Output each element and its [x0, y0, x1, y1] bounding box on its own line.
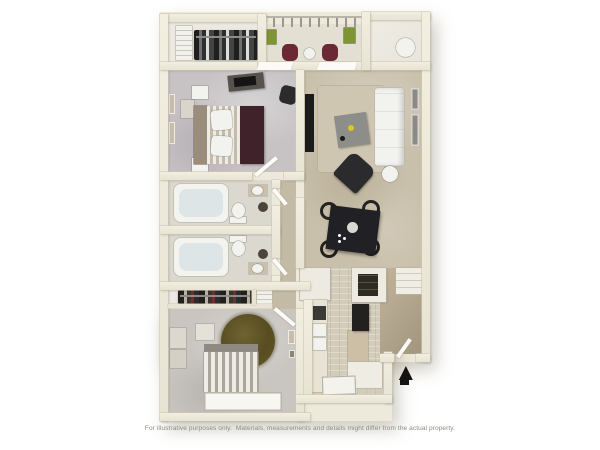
bedroom2-wall-art — [288, 330, 295, 344]
wall-bedroom-bath-b — [284, 172, 304, 180]
planter-right-icon — [344, 28, 355, 43]
bedroom2-dresser-2 — [170, 350, 186, 368]
sink-2-basin — [252, 264, 263, 273]
bedroom2-headboard — [204, 344, 258, 352]
oven-front — [313, 338, 326, 350]
bedroom2-closet-rod — [180, 295, 250, 297]
wall-bath-bottom — [160, 282, 310, 290]
closet-shelves — [176, 26, 192, 60]
coffee-table-accent — [348, 125, 354, 131]
wall-bedroom2-bottom — [160, 413, 310, 421]
living-wall-art-1 — [411, 88, 419, 110]
bedroom2-wall-fixture — [289, 350, 295, 358]
refrigerator-icon — [352, 304, 369, 331]
bath-1-plant-icon — [258, 202, 268, 212]
bedroom2-dresser-1 — [170, 328, 186, 348]
bathtub-1 — [174, 184, 228, 222]
dining-setting-3 — [338, 240, 341, 243]
bedroom2-hanging-clothes-icon — [178, 290, 252, 304]
bath-2-plant-icon — [258, 249, 268, 259]
dishwasher-front — [313, 324, 326, 336]
patio-chair-right — [322, 44, 338, 61]
bed-blanket — [240, 106, 264, 164]
wall-bath-divider — [160, 226, 280, 234]
planter-left-icon — [266, 30, 276, 44]
wall-top-closet — [160, 14, 266, 22]
balcony-railing — [264, 16, 364, 27]
stove-icon — [313, 306, 326, 320]
linen-shelves — [257, 290, 272, 304]
toilet-1-bowl — [232, 203, 245, 218]
sofa — [375, 88, 404, 166]
kitchen-counter-right-tan — [348, 331, 368, 362]
wall-bath-right-a — [272, 180, 280, 188]
wall-hall-dining — [296, 198, 304, 268]
dining-setting-2 — [343, 237, 346, 240]
bedroom-wall-art-1 — [169, 94, 175, 114]
vanity — [181, 100, 194, 118]
side-table-round — [382, 166, 398, 182]
nightstand-top — [192, 86, 208, 99]
toilet-2-bowl — [232, 241, 245, 256]
closet2-front-line — [168, 304, 272, 308]
coffee-table-bowl — [340, 136, 345, 141]
wall-bath-right-b — [272, 206, 280, 258]
wall-balcony-storage — [362, 12, 370, 70]
storage-room-floor — [370, 20, 422, 62]
cabinet-shelves-dark — [358, 274, 378, 296]
dining-plate — [347, 222, 358, 233]
living-wall-art-2 — [411, 114, 419, 146]
wall-bedroom-living — [296, 70, 304, 180]
bathtub-2 — [174, 238, 228, 276]
wall-kitchen-bottom — [296, 395, 392, 403]
disclaimer-caption: For illustrative purposes only. Material… — [0, 425, 600, 432]
sink-1-basin — [252, 186, 263, 195]
wall-vestibule-bottom-a — [380, 354, 394, 362]
floorplan-screenshot: ▲ For illustrative purposes only. Materi… — [0, 0, 600, 450]
bedroom2-bed — [204, 352, 258, 392]
kitchen-mat — [322, 375, 357, 395]
wall-left — [160, 14, 168, 421]
bedroom2-nightstand — [196, 324, 214, 340]
tv-console-icon — [305, 94, 314, 152]
wall-bedroom2-right — [296, 309, 304, 421]
coat-closet — [396, 268, 422, 294]
wall-upper-divider — [160, 62, 430, 70]
patio-chair-left — [282, 44, 298, 61]
closet-rod — [196, 36, 256, 38]
water-heater-icon — [396, 38, 415, 57]
bedroom2-white-rug — [204, 392, 282, 411]
wall-bedroom-bath-a — [160, 172, 252, 180]
bed-headboard — [194, 106, 207, 164]
bedroom-balcony-window — [257, 62, 294, 70]
living-balcony-window — [317, 62, 358, 70]
closet2-divider — [252, 290, 256, 305]
bed-pillow-1 — [210, 109, 233, 131]
kitchen-entry-floor — [330, 268, 352, 300]
wall-vestibule-bottom-b — [416, 354, 430, 362]
entrance-arrow-stem — [400, 378, 409, 385]
bedroom-wall-art-2 — [169, 122, 175, 144]
hanging-clothes-icon — [194, 30, 258, 60]
dining-setting-1 — [338, 234, 341, 237]
bed-pillow-2 — [210, 135, 232, 156]
wall-kitchen-left — [304, 300, 312, 395]
wall-top-storage — [362, 12, 430, 20]
patio-table — [304, 48, 315, 59]
